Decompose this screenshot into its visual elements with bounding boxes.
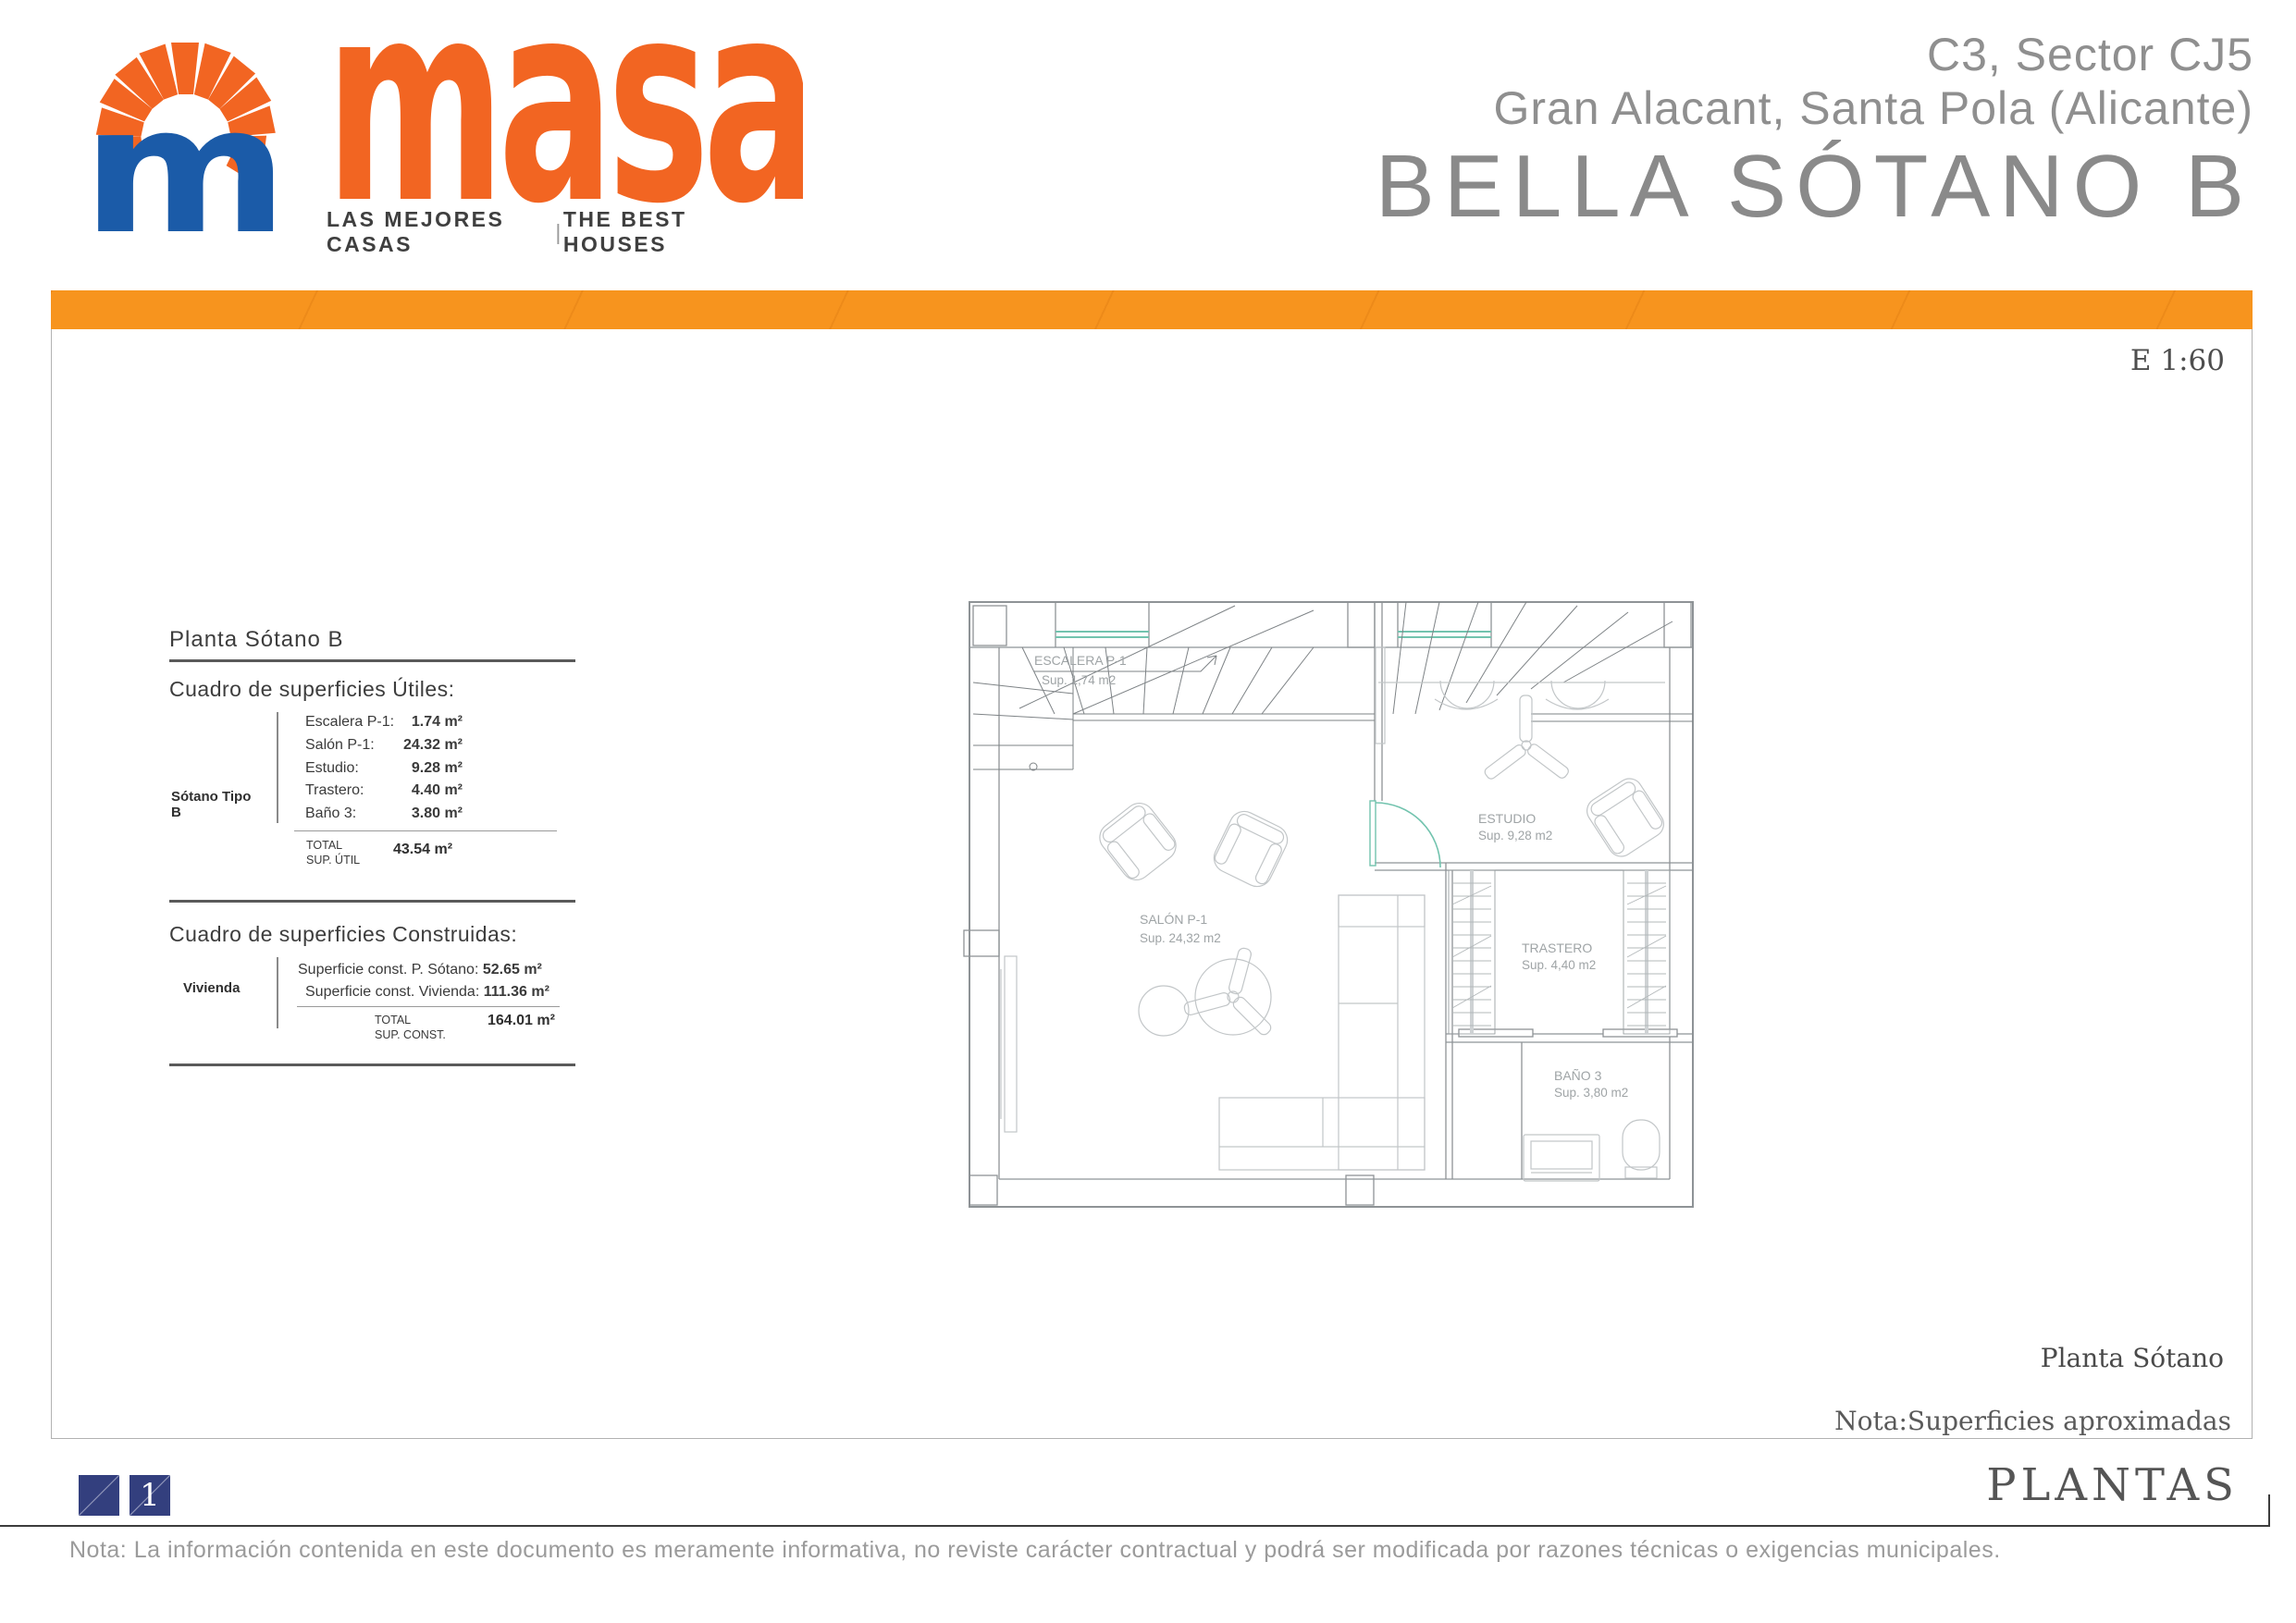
armchair [1209,806,1292,891]
table-row: Superficie const. P. Sótano: 52.65 m² [298,962,542,978]
tripod-fan [1483,695,1570,781]
table-row: Escalera P-1: 1.74 m² [305,714,463,731]
row-value: 3.80 m² [412,805,463,822]
row-label: Superficie const. Vivienda: [305,984,479,1000]
row-value: 24.32 m² [403,737,463,754]
plan-caption: Planta Sótano [2041,1343,2224,1373]
plan-furniture [1001,647,1669,1181]
room-area: Sup. 1,74 m2 [1042,673,1116,687]
built-bottom-rule [169,1064,575,1066]
total-word: TOTAL [375,1013,446,1027]
built-total-value: 164.01 m² [488,1013,555,1029]
door-leaf [1370,801,1376,866]
tagline-en: THE BEST HOUSES [563,207,761,257]
row-label: Baño 3: [305,805,356,822]
footer-rule [0,1494,2270,1527]
built-surfaces-heading: Cuadro de superficies Construidas: [169,922,517,947]
row-label: Estudio: [305,760,359,777]
room-area: Sup. 24,32 m2 [1140,931,1221,945]
row-label: Salón P-1: [305,737,375,754]
panel-title: Planta Sótano B [169,627,343,653]
useful-table-divider [277,712,278,823]
brochure-page: m masa LAS MEJORES CASAS | THE BEST HOUS… [0,0,2296,1623]
room-label: SALÓN P-1 [1140,912,1207,927]
row-value: 9.28 m² [412,760,463,777]
page-title: BELLA SÓTANO B [1376,141,2253,233]
row-value: 4.40 m² [412,782,463,799]
room-area: Sup. 9,28 m2 [1478,829,1552,842]
built-total-label: TOTAL SUP. CONST. [375,1013,446,1042]
logo-tagline: LAS MEJORES CASAS | THE BEST HOUSES [327,207,761,257]
row-value: 52.65 m² [483,962,542,977]
useful-total-label: TOTAL SUP. ÚTIL [306,838,360,867]
row-label: Escalera P-1: [305,714,394,731]
disclaimer-text: Nota: La información contenida en este d… [69,1537,2001,1564]
media-unit [1005,956,1017,1132]
built-top-rule [169,900,575,903]
project-location: Gran Alacant, Santa Pola (Alicante) [1376,81,2253,135]
approx-note: Nota:Superficies aproximadas [1834,1406,2231,1436]
table-row: Trastero: 4.40 m² [305,782,463,799]
svg-text:m: m [81,68,289,239]
room-label: BAÑO 3 [1554,1068,1602,1083]
room-labels: ESCALERA P-1 Sup. 1,74 m2 SALÓN P-1 Sup.… [1034,653,1628,1100]
accent-bar [51,290,2253,329]
table-row: Baño 3: 3.80 m² [305,805,463,822]
door-swing-arc [1376,803,1440,867]
table-row: Estudio: 9.28 m² [305,760,463,777]
toilet [1623,1120,1660,1178]
useful-group-label: Sótano Tipo B [171,789,264,820]
room-label: TRASTERO [1522,941,1592,955]
table-row: Superficie const. Vivienda: 111.36 m² [305,984,549,1001]
useful-total-rule [294,830,557,831]
room-area: Sup. 4,40 m2 [1522,958,1596,972]
panel-title-rule [169,659,575,662]
project-sector: C3, Sector CJ5 [1376,28,2253,81]
row-label: Superficie const. P. Sótano: [298,962,478,977]
desk-chair [1551,681,1605,708]
floor-plan-drawing: ESCALERA P-1 Sup. 1,74 m2 SALÓN P-1 Sup.… [962,581,1711,1228]
total-word: TOTAL [306,838,360,853]
built-table-divider [277,957,278,1028]
tagline-es: LAS MEJORES CASAS [327,207,555,257]
built-total-rule [297,1006,560,1007]
armchair [1582,774,1668,862]
sofa [1219,895,1425,1170]
table-row: Salón P-1: 24.32 m² [305,737,463,754]
useful-surfaces-heading: Cuadro de superficies Útiles: [169,677,455,702]
total-word: SUP. ÚTIL [306,853,360,867]
row-value: 1.74 m² [412,714,463,731]
tagline-divider: | [555,220,562,245]
room-area: Sup. 3,80 m2 [1554,1086,1628,1100]
side-table [1139,986,1189,1036]
built-group-label: Vivienda [183,980,276,996]
useful-total-value: 43.54 m² [393,842,452,858]
armchair [1093,797,1181,886]
room-label: ESCALERA P-1 [1034,653,1127,668]
total-word: SUP. CONST. [375,1027,446,1042]
project-header: C3, Sector CJ5 Gran Alacant, Santa Pola … [1376,28,2253,233]
drawing-scale: E 1:60 [2130,344,2225,377]
row-value: 111.36 m² [484,984,549,1000]
row-label: Trastero: [305,782,364,799]
room-label: ESTUDIO [1478,811,1536,826]
bath-sink [1524,1135,1599,1181]
logo-m-mark: m [81,68,289,239]
